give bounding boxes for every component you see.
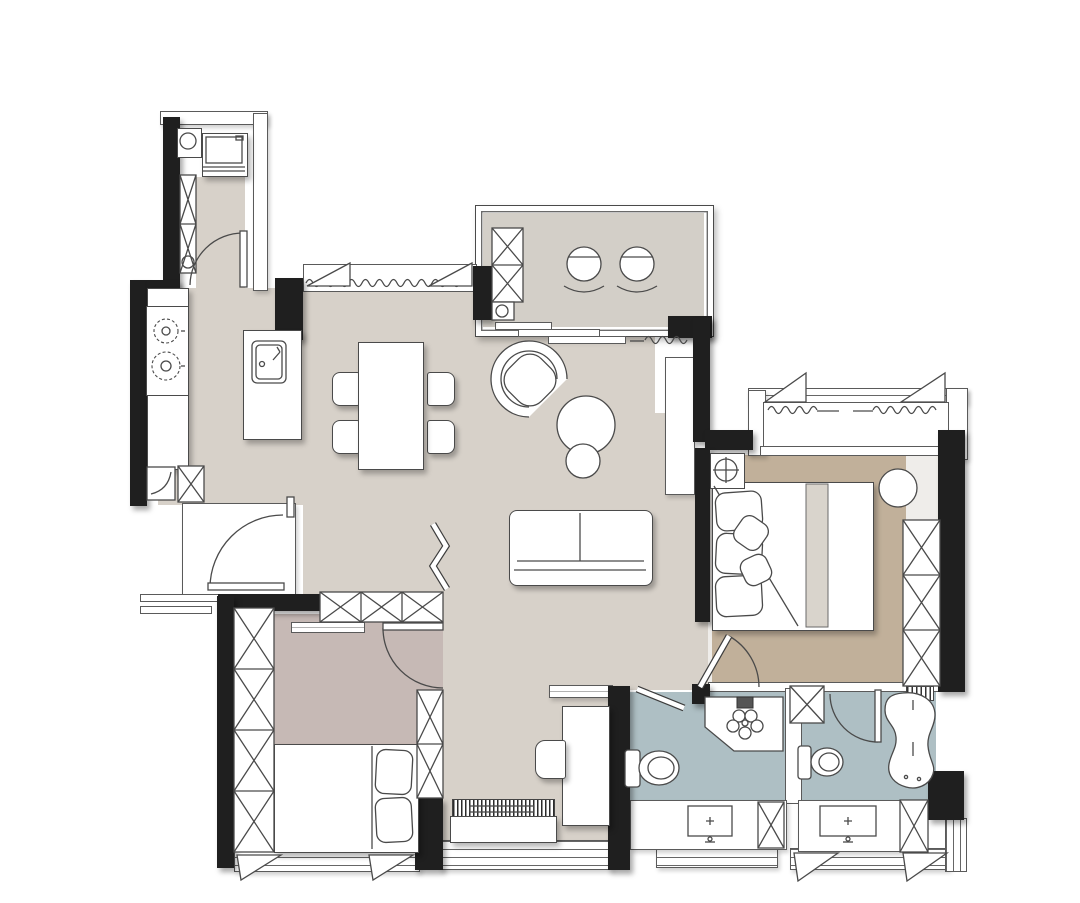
- dining-chair-4: [427, 420, 455, 454]
- floor-hallway: [443, 597, 655, 690]
- dining-chair-3: [427, 372, 455, 406]
- study-window: [440, 840, 612, 870]
- wall-east-upper: [693, 318, 710, 442]
- vanity-counter-master: [798, 800, 924, 852]
- bedroom2-wardrobe: [234, 608, 274, 852]
- bedroom2-bed: [274, 744, 419, 853]
- entry-foyer-alcove: [182, 503, 296, 595]
- entry-right-wall: [253, 113, 268, 291]
- wall-kitchen-west: [130, 280, 147, 506]
- wall-master-north-elbow: [705, 430, 753, 450]
- dining-chair-1: [332, 372, 360, 406]
- balcony-sliding-panel-3: [548, 336, 626, 344]
- vanity-counter-shared: [630, 800, 787, 850]
- floor-plan-canvas: [0, 0, 1080, 903]
- master-bath-switch-box: [908, 668, 924, 681]
- plant-stand: [710, 453, 745, 489]
- bathroom-master-side-window: [945, 818, 967, 872]
- study-wall-shelf: [549, 685, 613, 698]
- water-heater: [177, 128, 202, 158]
- wall-study-west-pier: [415, 798, 443, 870]
- floor-entry-corridor: [196, 177, 245, 288]
- study-desk: [562, 706, 610, 826]
- master-bed: [712, 482, 874, 631]
- wall-bedroom2-west: [217, 596, 234, 868]
- bathroom-shared-window: [656, 848, 778, 868]
- dining-chair-2: [332, 420, 360, 454]
- bathroom-divider-wall: [785, 688, 802, 804]
- floor-bedroom2: [274, 614, 443, 751]
- piano-body: [450, 816, 557, 843]
- wall-master-south-pier: [692, 684, 710, 704]
- sofa: [509, 510, 653, 586]
- sliding-door-pocket: [665, 357, 695, 495]
- floor-bathroom-master: [800, 688, 936, 800]
- master-window-sill-wall: [760, 446, 944, 456]
- floor-balcony: [483, 213, 704, 327]
- bay-window-floor: [763, 402, 949, 452]
- bathtub-grate: [906, 686, 934, 701]
- stove-panel: [146, 306, 189, 396]
- kitchen-island: [243, 330, 302, 440]
- shoe-cabinet: [180, 175, 196, 273]
- refrigerator: [202, 133, 248, 177]
- bedroom2-tv-shelf: [291, 622, 365, 633]
- dining-window-band: [303, 264, 477, 292]
- wall-study-east: [608, 686, 630, 870]
- wall-master-west: [695, 448, 710, 622]
- exterior-ledge-upper: [140, 594, 220, 602]
- wall-bath-master-southeast: [928, 771, 964, 820]
- wall-master-east: [938, 430, 965, 692]
- floor-bathroom-shared: [630, 692, 785, 802]
- study-chair: [535, 740, 566, 779]
- wall-balcony-southwest: [473, 266, 492, 320]
- exterior-ledge-lower: [140, 606, 212, 614]
- dining-table: [358, 342, 424, 470]
